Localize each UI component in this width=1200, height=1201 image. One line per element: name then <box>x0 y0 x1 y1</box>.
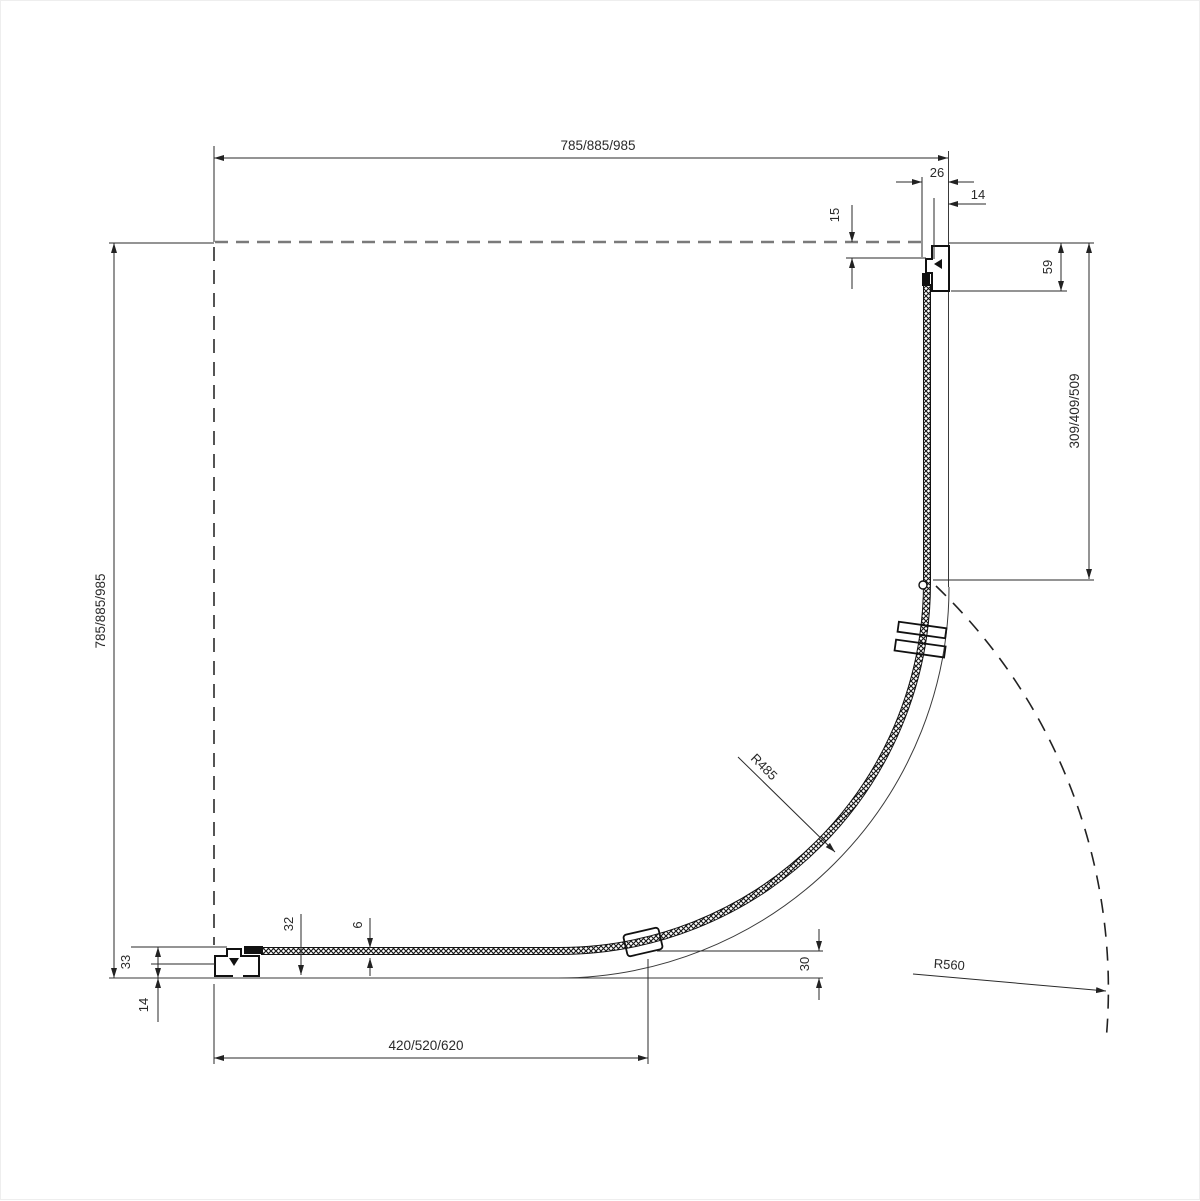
label-59: 59 <box>1040 260 1055 274</box>
wall-axis-lines <box>214 242 921 945</box>
outer-rim-arc <box>558 587 949 978</box>
label-6: 6 <box>350 921 365 928</box>
leader-r485 <box>738 757 835 852</box>
label-r485: R485 <box>748 751 781 784</box>
glass-inner-edge <box>261 284 924 948</box>
glass-clamp-block <box>244 946 263 954</box>
quadrant-shower-plan-drawing: 785/885/985 785/885/985 420/520/620 309/… <box>1 1 1200 1201</box>
tray-outline <box>109 151 949 978</box>
wall-profile-top-right <box>922 246 949 291</box>
leader-r560 <box>913 974 1106 991</box>
label-left-depth: 785/885/985 <box>93 573 108 648</box>
glass-panels <box>261 284 931 955</box>
door-hardware <box>623 622 946 957</box>
label-r560: R560 <box>933 956 965 973</box>
glass-band-hatch <box>261 284 927 951</box>
label-14-left: 14 <box>136 998 151 1012</box>
panel-joint-roller <box>919 581 927 589</box>
glass-outer-edge <box>261 284 931 955</box>
label-14-top: 14 <box>971 187 985 202</box>
glass-clamp-block <box>922 273 930 286</box>
label-top-width: 785/885/985 <box>560 138 635 153</box>
label-32: 32 <box>281 917 296 931</box>
label-33: 33 <box>118 955 133 969</box>
label-right-glass: 309/409/509 <box>1067 373 1082 448</box>
profile-notch <box>233 971 243 977</box>
label-26: 26 <box>930 165 944 180</box>
label-bottom-glass: 420/520/620 <box>388 1038 463 1053</box>
label-30: 30 <box>797 957 812 971</box>
label-15: 15 <box>827 208 842 222</box>
wall-profile-bottom-left <box>215 946 263 977</box>
technical-drawing-page: 785/885/985 785/885/985 420/520/620 309/… <box>0 0 1200 1200</box>
